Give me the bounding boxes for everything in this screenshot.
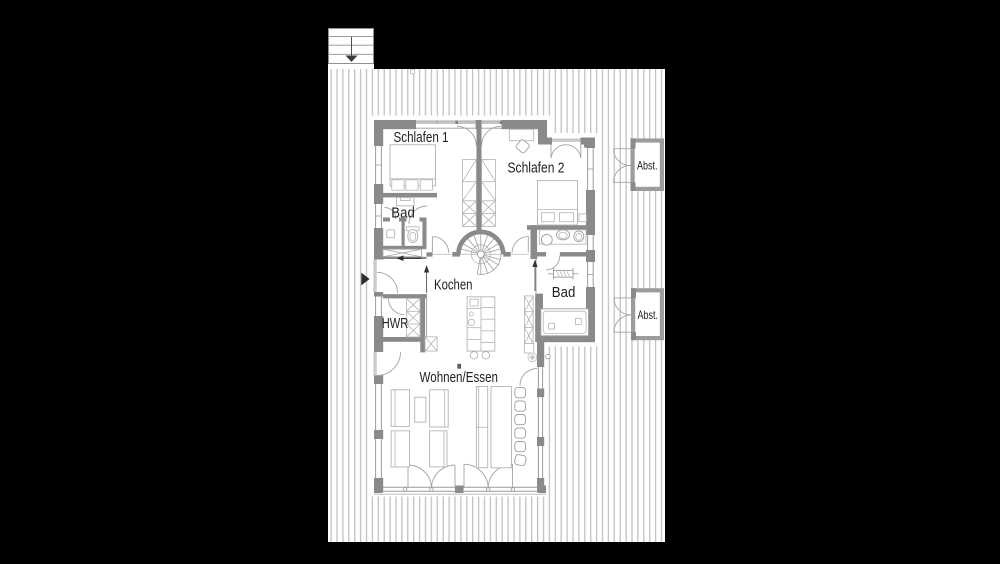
svg-text:Kochen: Kochen [434, 276, 473, 293]
svg-text:HWR: HWR [382, 315, 409, 332]
svg-text:Schlafen 1: Schlafen 1 [394, 129, 449, 146]
svg-text:Abst.: Abst. [637, 158, 658, 172]
svg-text:Bad: Bad [552, 284, 576, 301]
svg-text:Abst.: Abst. [638, 308, 659, 322]
svg-text:Schlafen 2: Schlafen 2 [508, 160, 565, 177]
svg-text:Wohnen/Essen: Wohnen/Essen [420, 369, 499, 386]
svg-text:Bad: Bad [391, 205, 415, 222]
